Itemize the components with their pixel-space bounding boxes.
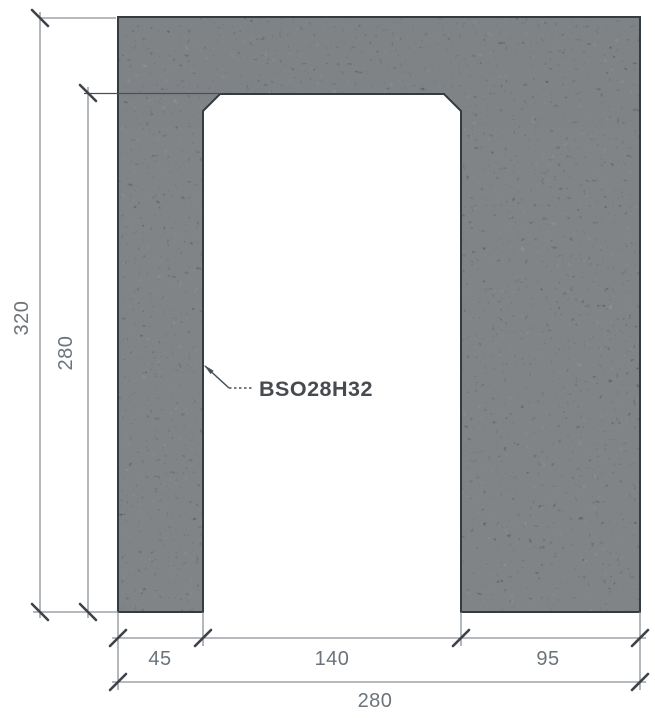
block-texture-light-speckle: [114, 13, 644, 616]
part-label: BSO28H32: [259, 377, 373, 401]
dim-text-opening-width: 140: [315, 648, 350, 670]
dim-text-right-pier: 95: [536, 648, 559, 670]
dim-text-overall-height: 320: [11, 301, 33, 336]
leader-line: [205, 366, 253, 388]
drawing-canvas: 320 280 45 140 95 280 BSO28H32: [0, 0, 655, 718]
dim-text-left-pier: 45: [148, 648, 171, 670]
dim-text-overall-width: 280: [358, 690, 393, 712]
block-section-body: [114, 13, 644, 616]
section-drawing: 320 280 45 140 95 280 BSO28H32: [0, 0, 655, 718]
dim-text-opening-height: 280: [55, 336, 77, 371]
